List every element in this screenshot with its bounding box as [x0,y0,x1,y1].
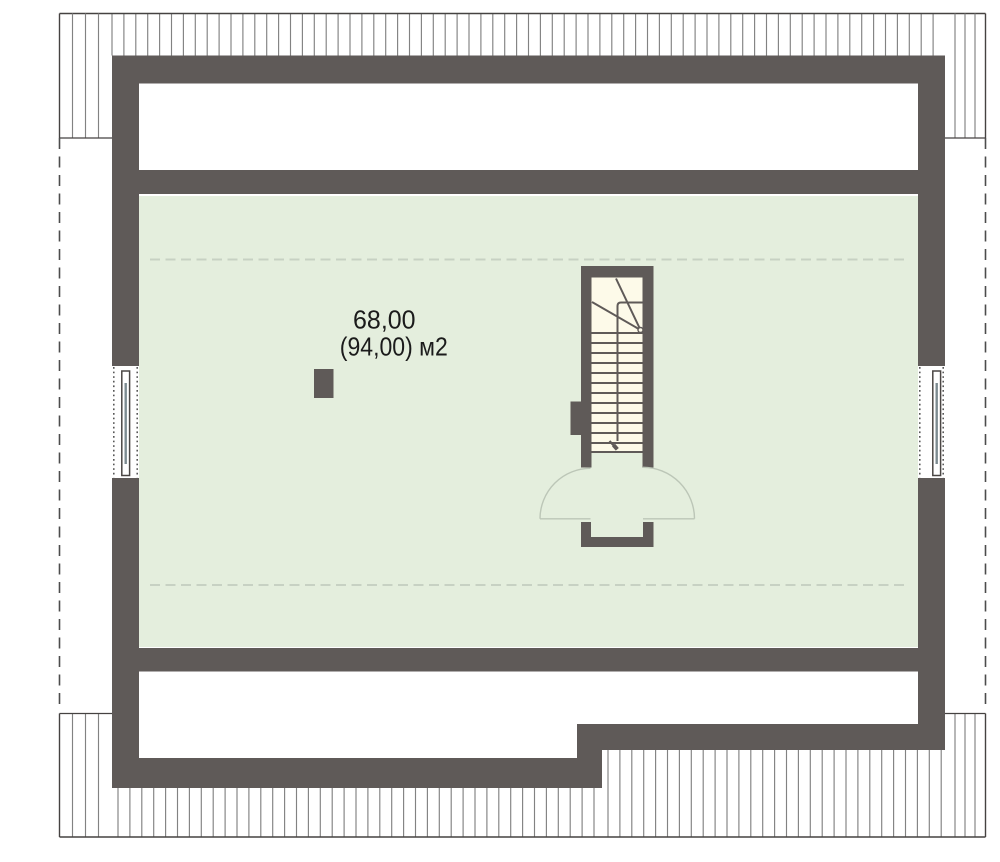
svg-text:68,00: 68,00 [353,305,416,335]
svg-text:(94,00) м2: (94,00) м2 [340,332,448,362]
